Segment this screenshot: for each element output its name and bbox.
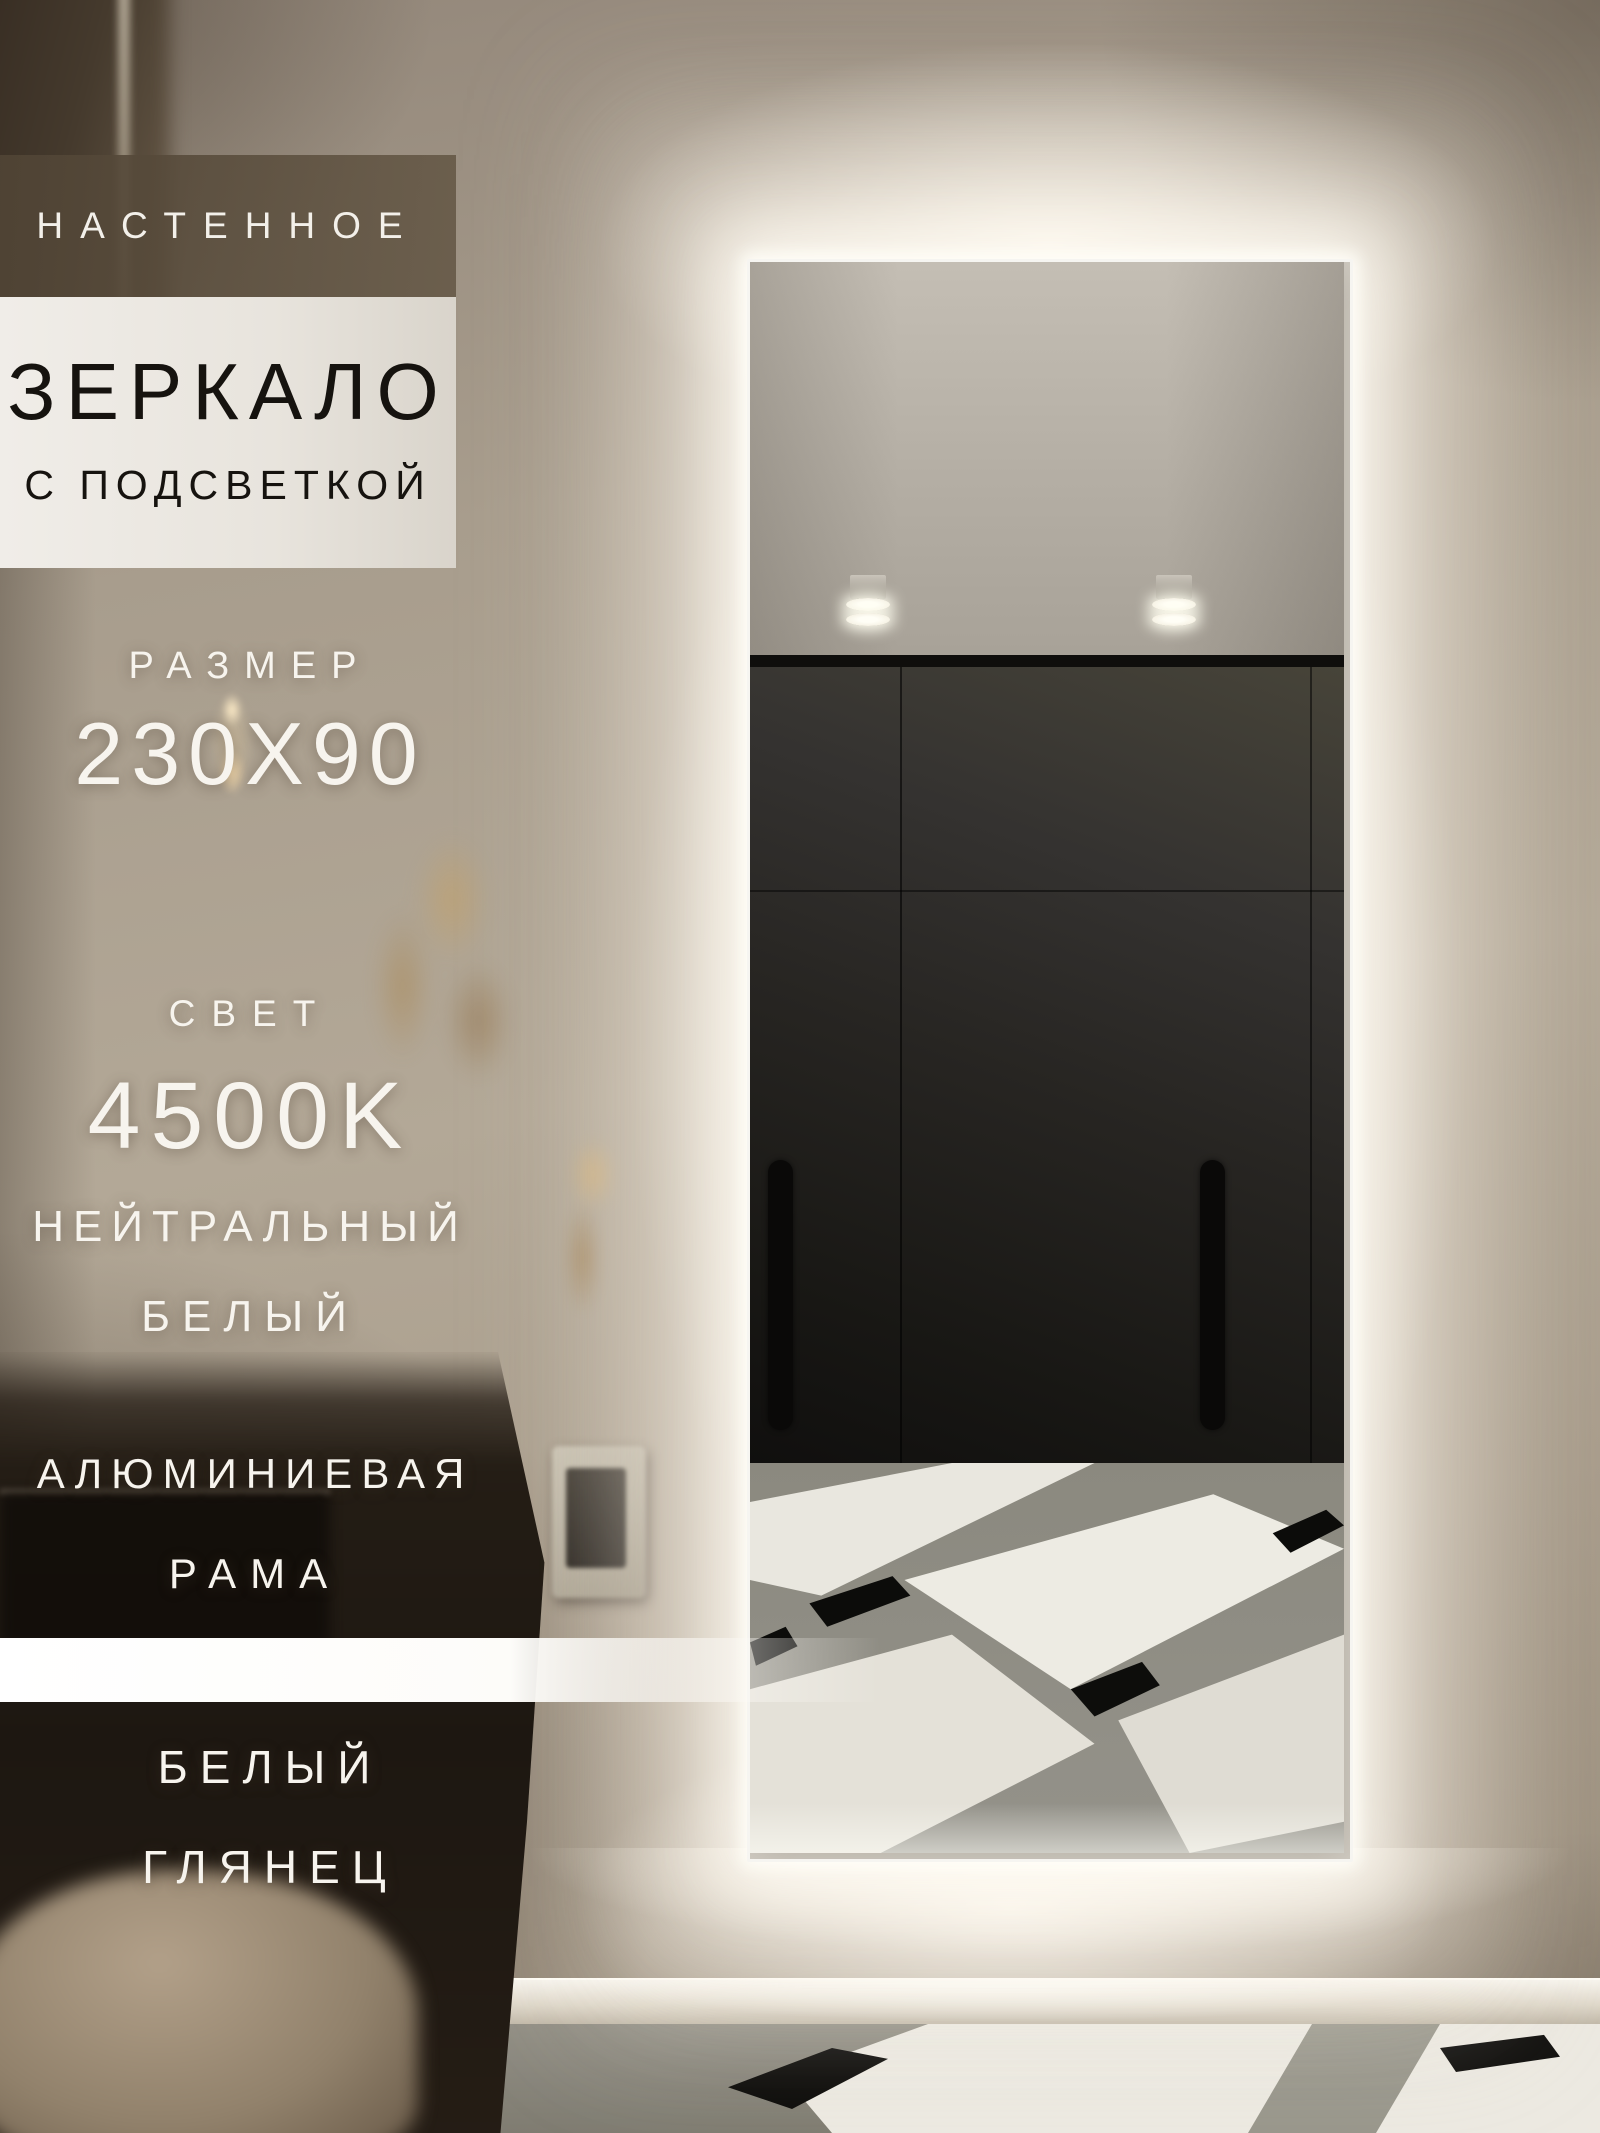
reflected-ceiling-shade [750,262,1344,655]
spotlight-body [1156,575,1192,599]
ceiling-spotlight [846,575,890,631]
finish-line1: БЕЛЫЙ [0,1740,540,1794]
light-switch-rocker [566,1468,626,1568]
wardrobe-seam-horizontal [750,890,1344,892]
wall-type-label: НАСТЕННОЕ [36,205,419,247]
wardrobe-seam [900,667,902,1463]
product-band: ЗЕРКАЛО С ПОДСВЕТКОЙ [0,297,456,568]
spotlight-glow-disc [846,598,890,611]
product-image: НАСТЕННОЕ ЗЕРКАЛО С ПОДСВЕТКОЙ РАЗМЕР 23… [0,0,1600,2133]
spotlight-glow-disc [846,613,890,626]
type-band: НАСТЕННОЕ [0,155,456,297]
product-title: ЗЕРКАЛО [7,356,448,428]
size-value: 230X90 [0,703,500,805]
wardrobe-seam [1310,667,1312,1463]
mirror-bottom-glow [750,1803,1344,1853]
frame-material-line1: АЛЮМИНИЕВАЯ [0,1450,510,1498]
reflected-wardrobe [750,667,1344,1463]
ceiling-spotlight [1152,575,1196,631]
spotlight-body [850,575,886,599]
backlight-subtitle: С ПОДСВЕТКОЙ [24,462,431,509]
wardrobe-ceiling-gap [750,655,1344,667]
spotlight-glow-disc [1152,613,1196,626]
finish-line2: ГЛЯНЕЦ [0,1840,540,1894]
frame-material-line2: РАМА [0,1550,510,1598]
baseboard-glow [560,1978,1460,2024]
spotlight-glow-disc [1152,598,1196,611]
wardrobe-handle [768,1160,793,1430]
light-tone-line2: БЕЛЫЙ [0,1292,500,1342]
wall-bottom-glow [520,1848,1580,1980]
size-label: РАЗМЕР [0,645,500,688]
wardrobe-handle [1200,1160,1225,1430]
light-temperature-value: 4500K [0,1062,500,1171]
led-mirror [747,259,1353,1862]
light-switch [552,1446,646,1598]
highlight-bar [0,1638,880,1702]
light-label: СВЕТ [0,993,500,1035]
pampas-grass-decor-small [538,1128,638,1338]
light-tone-line1: НЕЙТРАЛЬНЫЙ [0,1202,500,1252]
